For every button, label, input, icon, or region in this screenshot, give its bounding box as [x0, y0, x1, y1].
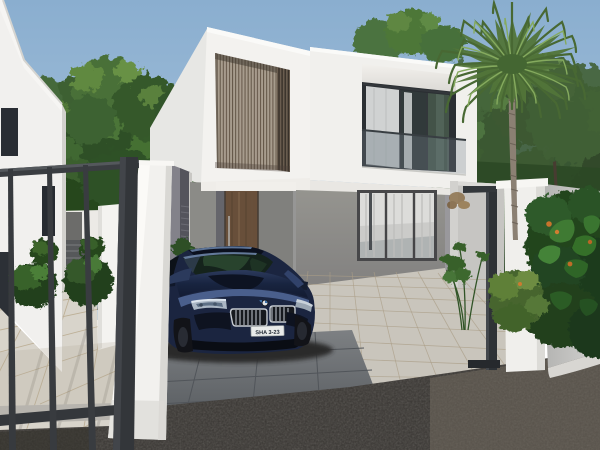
svg-text:SHA 3-23: SHA 3-23 — [255, 330, 280, 337]
